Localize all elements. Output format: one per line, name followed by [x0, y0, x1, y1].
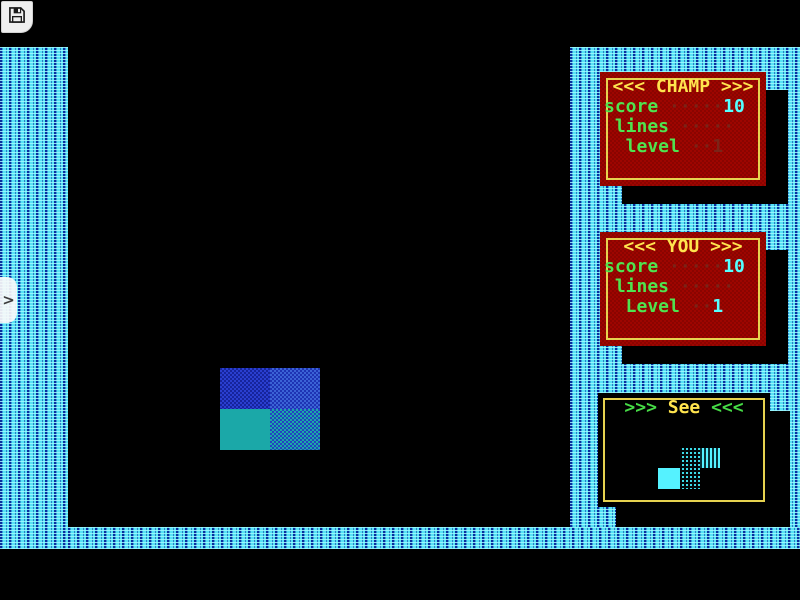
- champ-lines-row: lines ·····: [600, 117, 766, 137]
- dot-leaders: ··: [680, 136, 713, 157]
- save-button[interactable]: [1, 1, 33, 33]
- champ-level-row: level ··1: [600, 137, 766, 157]
- champ-title: <<< CHAMP >>>: [600, 77, 766, 97]
- floppy-disk-icon: [7, 5, 27, 29]
- game-screen: <<< CHAMP >>> score ·····10 lines ····· …: [0, 0, 800, 600]
- you-score-row: score ·····10: [600, 257, 766, 277]
- you-lines-row: lines ·····: [600, 277, 766, 297]
- piece-block: [220, 409, 270, 450]
- champ-score-value: 10: [723, 96, 745, 117]
- piece-block: [270, 409, 320, 450]
- piece-block: [700, 448, 720, 468]
- you-score-value: 10: [723, 256, 745, 277]
- drawer-handle[interactable]: >: [0, 277, 17, 323]
- left-arrows-icon: <<<: [623, 236, 656, 257]
- see-panel: >>> See <<<: [598, 393, 770, 507]
- dot-leaders: ·····: [658, 256, 723, 277]
- you-title: <<< YOU >>>: [600, 237, 766, 257]
- next-piece-layer: [598, 393, 770, 507]
- piece-block: [658, 468, 680, 489]
- right-arrows-icon: >>>: [721, 76, 754, 97]
- piece-block: [680, 448, 700, 468]
- you-level-row: Level ··1: [600, 297, 766, 317]
- chevron-right-icon: >: [2, 291, 15, 309]
- piece-block: [220, 368, 270, 409]
- you-level-value: 1: [712, 296, 723, 317]
- dot-leaders: ·····: [669, 276, 734, 297]
- right-arrows-icon: >>>: [710, 236, 743, 257]
- champ-score-row: score ·····10: [600, 97, 766, 117]
- dot-leaders: ··: [680, 296, 713, 317]
- champ-panel: <<< CHAMP >>> score ·····10 lines ····· …: [600, 72, 766, 186]
- piece-block: [270, 368, 320, 409]
- dot-leaders: ·····: [658, 96, 723, 117]
- left-arrows-icon: <<<: [613, 76, 646, 97]
- champ-level-value: 1: [712, 136, 723, 157]
- dot-leaders: ·····: [669, 116, 734, 137]
- piece-block: [680, 468, 700, 489]
- you-panel: <<< YOU >>> score ·····10 lines ····· Le…: [600, 232, 766, 346]
